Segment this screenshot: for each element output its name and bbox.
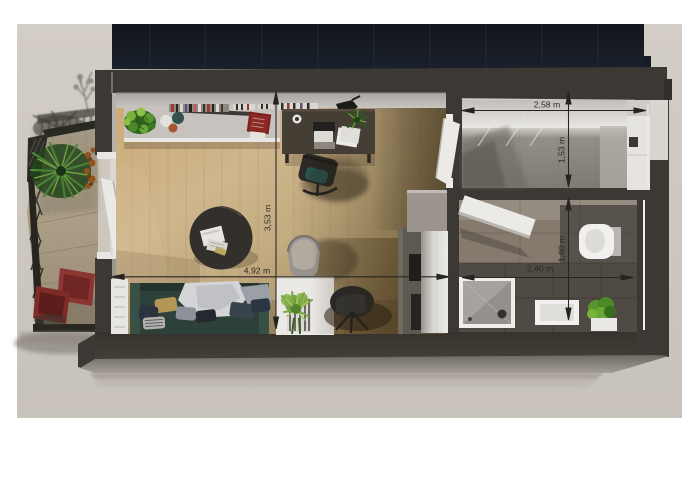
svg-text:1,53 m: 1,53 m — [557, 137, 567, 164]
svg-text:3,53 m: 3,53 m — [263, 205, 273, 232]
svg-text:1,80 m: 1,80 m — [557, 236, 567, 263]
svg-text:4,92 m: 4,92 m — [244, 266, 271, 276]
svg-text:2,58 m: 2,58 m — [534, 100, 561, 110]
svg-text:2,40 m: 2,40 m — [527, 264, 554, 274]
